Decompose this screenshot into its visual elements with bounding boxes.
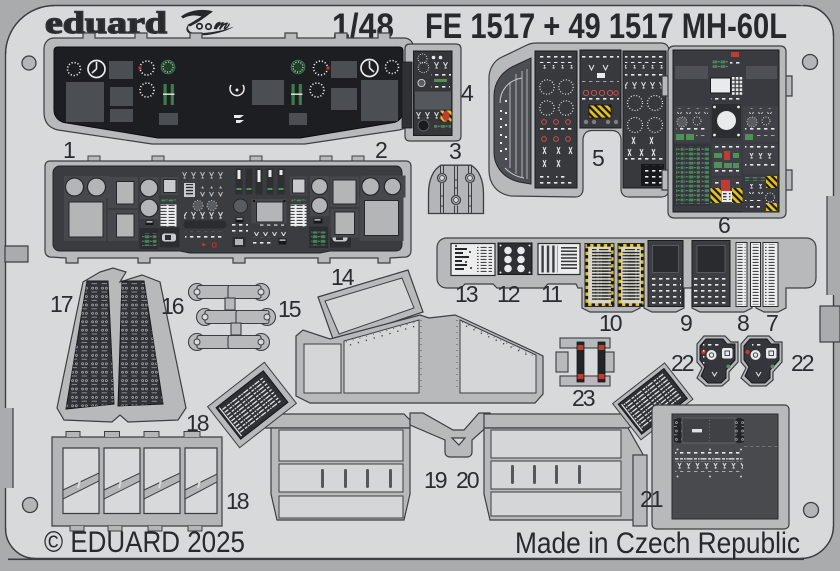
- svg-text:16: 16: [161, 293, 184, 319]
- svg-text:9: 9: [680, 310, 693, 336]
- svg-text:17: 17: [50, 291, 73, 317]
- svg-text:4: 4: [461, 80, 474, 106]
- svg-text:23: 23: [572, 385, 595, 411]
- svg-text:© EDUARD 2025: © EDUARD 2025: [44, 526, 245, 559]
- svg-text:Made in Czech Republic: Made in Czech Republic: [515, 527, 800, 560]
- svg-text:22: 22: [791, 350, 814, 376]
- svg-text:8: 8: [737, 310, 750, 336]
- svg-text:19: 19: [424, 467, 447, 493]
- svg-text:5: 5: [592, 145, 605, 171]
- svg-text:15: 15: [278, 296, 301, 322]
- svg-text:18: 18: [186, 410, 209, 436]
- svg-text:eduard: eduard: [45, 5, 167, 40]
- svg-text:13: 13: [455, 281, 478, 307]
- svg-text:FE 1517 + 49 1517 MH-60L: FE 1517 + 49 1517 MH-60L: [425, 7, 787, 46]
- svg-text:1: 1: [63, 137, 76, 163]
- svg-text:3: 3: [449, 138, 462, 164]
- svg-text:11: 11: [541, 281, 562, 307]
- svg-text:7: 7: [766, 310, 779, 336]
- svg-text:6: 6: [718, 212, 731, 238]
- svg-text:20: 20: [456, 467, 479, 493]
- svg-text:14: 14: [331, 264, 355, 290]
- svg-text:10: 10: [599, 310, 622, 336]
- svg-text:18: 18: [226, 488, 249, 514]
- svg-text:2: 2: [375, 137, 388, 163]
- svg-text:12: 12: [497, 281, 520, 307]
- svg-text:21: 21: [640, 486, 663, 512]
- svg-text:22: 22: [671, 350, 694, 376]
